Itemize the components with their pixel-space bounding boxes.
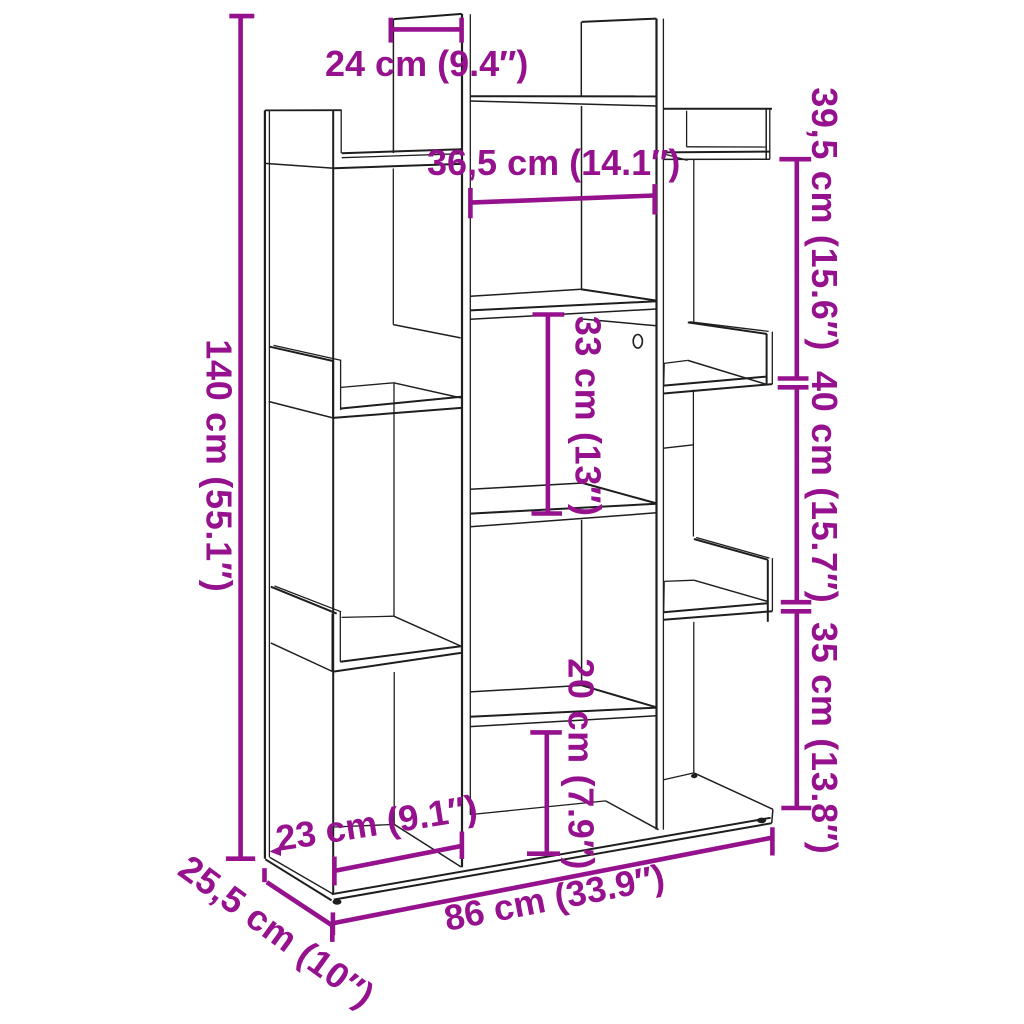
- svg-text:35 cm (13.8″): 35 cm (13.8″): [804, 622, 845, 854]
- svg-text:140 cm (55.1″): 140 cm (55.1″): [199, 339, 240, 592]
- svg-text:20 cm (7.9″): 20 cm (7.9″): [561, 658, 602, 870]
- svg-text:36,5 cm (14.1″): 36,5 cm (14.1″): [427, 142, 680, 183]
- svg-text:40 cm (15.7″): 40 cm (15.7″): [804, 371, 845, 603]
- svg-text:33 cm (13″): 33 cm (13″): [568, 316, 609, 517]
- svg-text:25,5 cm (10″): 25,5 cm (10″): [171, 847, 382, 1016]
- svg-text:39,5 cm (15.6″): 39,5 cm (15.6″): [804, 87, 845, 351]
- svg-text:24 cm (9.4″): 24 cm (9.4″): [325, 43, 528, 84]
